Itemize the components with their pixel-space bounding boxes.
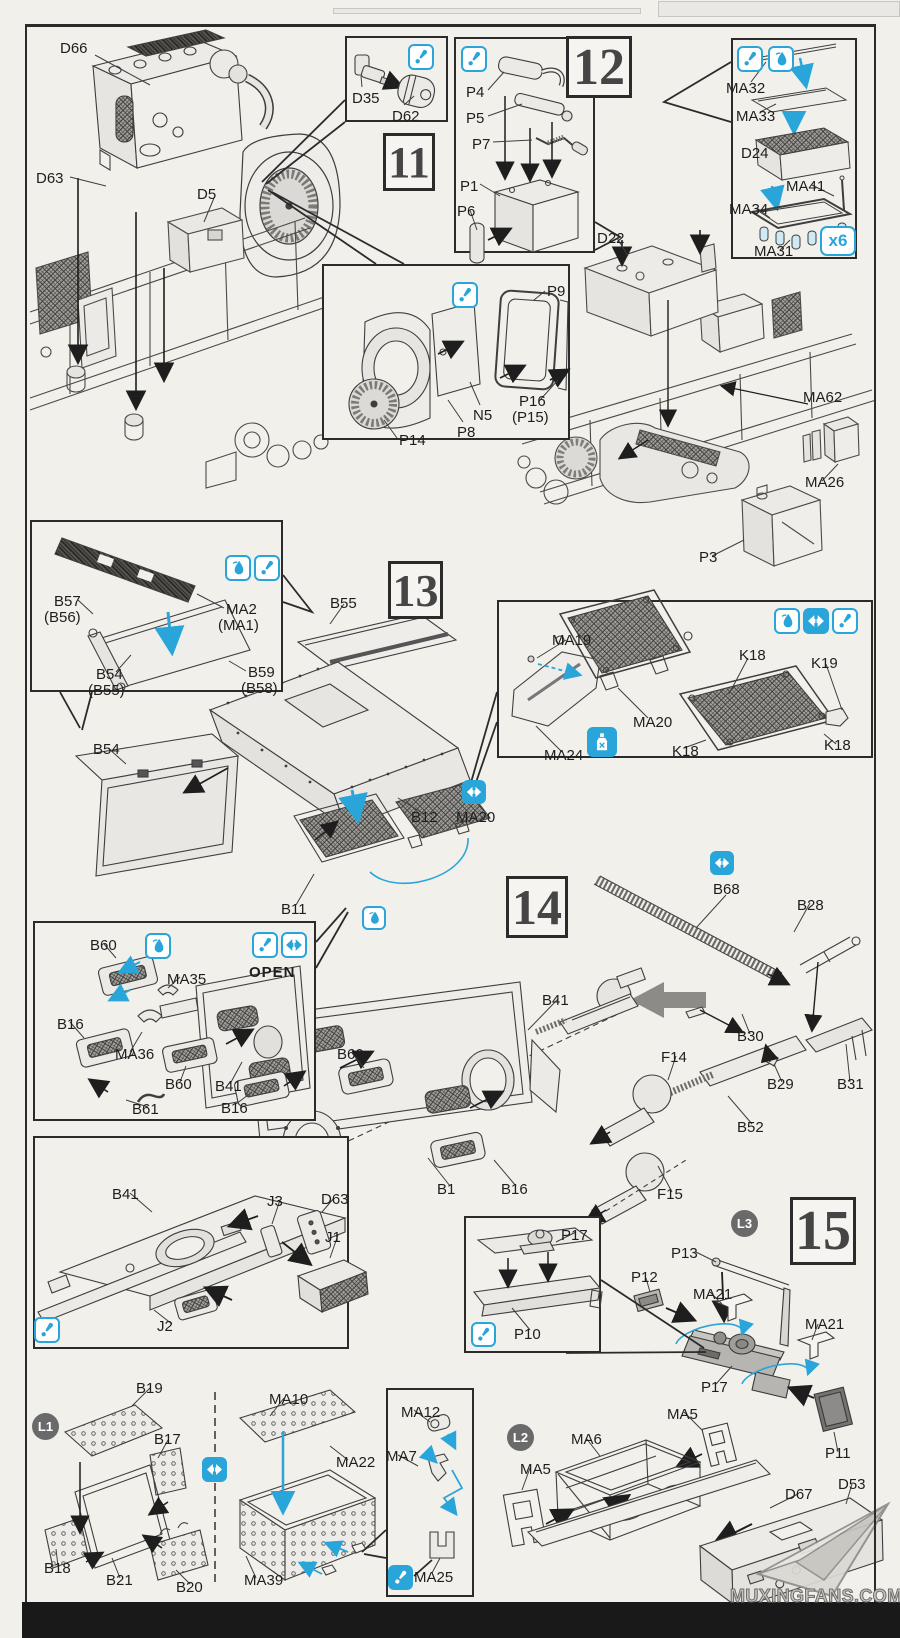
step-13-text: 13 <box>393 564 439 617</box>
attention-icon <box>34 1317 60 1343</box>
step-12-text: 12 <box>573 38 625 97</box>
part-label: MA62 <box>803 389 842 406</box>
part-label: MA26 <box>805 474 844 491</box>
part-label: B17 <box>154 1431 181 1448</box>
part-label: P6 <box>457 203 475 220</box>
cement-icon <box>587 727 617 757</box>
part-label: B60 <box>337 1046 364 1063</box>
part-label: D53 <box>838 1476 866 1493</box>
part-label: MA21 <box>693 1286 732 1303</box>
step-11-number: 11 <box>383 133 435 191</box>
part-label: B30 <box>737 1028 764 1045</box>
part-label: P5 <box>466 110 484 127</box>
step-15-number: 15 <box>790 1197 856 1265</box>
part-label: K18 <box>824 737 851 754</box>
part-label: (B55) <box>88 682 125 699</box>
part-label: MA34 <box>729 201 768 218</box>
part-label: MA33 <box>736 108 775 125</box>
part-label: MA25 <box>414 1569 453 1586</box>
quantity-x6-badge: x6 <box>820 226 856 256</box>
part-label: MA41 <box>786 178 825 195</box>
part-label: P11 <box>825 1445 851 1462</box>
part-label: P17 <box>701 1379 728 1396</box>
glue-icon <box>774 608 800 634</box>
attention-icon <box>471 1322 496 1347</box>
optional-parts-icon <box>803 608 829 634</box>
part-label: B41 <box>215 1078 242 1095</box>
part-label: D24 <box>741 145 769 162</box>
part-label: MA22 <box>336 1454 375 1471</box>
part-label: P17 <box>561 1227 588 1244</box>
part-label: F14 <box>661 1049 687 1066</box>
open-position-label: OPEN <box>249 964 296 981</box>
part-label: P13 <box>671 1245 698 1262</box>
part-label: B20 <box>176 1579 203 1596</box>
part-label: B31 <box>837 1076 864 1093</box>
part-label: MA35 <box>167 971 206 988</box>
part-label: MA31 <box>754 243 793 260</box>
part-label: P10 <box>514 1326 541 1343</box>
part-label: J1 <box>325 1229 341 1246</box>
part-label: B12 <box>411 809 438 826</box>
stowage-l1-drawing <box>45 1392 215 1584</box>
part-label: D5 <box>197 186 216 203</box>
part-label: (P15) <box>512 409 549 426</box>
part-label: B54 <box>96 666 123 683</box>
optional-parts-icon <box>710 851 734 875</box>
attention-icon <box>737 46 763 72</box>
part-label: D63 <box>321 1191 349 1208</box>
part-label: B60 <box>90 937 117 954</box>
part-label: B18 <box>44 1560 71 1577</box>
part-label: MA19 <box>552 632 591 649</box>
fan-drawing <box>240 134 340 277</box>
part-label: (MA1) <box>218 617 259 634</box>
part-label: P3 <box>699 549 717 566</box>
part-label: B11 <box>281 901 307 918</box>
part-label: MA10 <box>269 1391 308 1408</box>
part-label: P9 <box>547 283 565 300</box>
part-label: P12 <box>631 1269 658 1286</box>
part-label: P1 <box>460 178 478 195</box>
glue-icon <box>362 906 386 930</box>
part-label: J2 <box>157 1318 173 1335</box>
part-label: B68 <box>713 881 740 898</box>
chassis-left-drawing <box>30 178 332 488</box>
sprue-badge-l2: L2 <box>507 1424 534 1451</box>
part-label: P4 <box>466 84 484 101</box>
part-label: B52 <box>737 1119 764 1136</box>
part-label: B41 <box>542 992 569 1009</box>
optional-parts-icon <box>202 1457 227 1482</box>
optional-parts-icon <box>281 932 307 958</box>
part-label: MA20 <box>456 809 495 826</box>
machinegun-step14-drawing <box>536 876 872 1224</box>
watermark-text: MUXINGFANS.COM <box>730 1586 900 1607</box>
part-label: MA6 <box>571 1431 602 1448</box>
part-label: MA5 <box>520 1461 551 1478</box>
part-label: P16 <box>519 393 546 410</box>
part-label: B29 <box>767 1076 794 1093</box>
attention-icon <box>408 44 434 70</box>
basket-ma10-drawing <box>240 1390 375 1580</box>
part-label: D35 <box>352 90 380 107</box>
part-label: MA32 <box>726 80 765 97</box>
part-label: D66 <box>60 40 88 57</box>
part-label: D22 <box>597 230 625 247</box>
attention-icon <box>461 46 487 72</box>
part-label: B19 <box>136 1380 163 1397</box>
page-border-frame <box>25 24 876 1602</box>
part-label: (B58) <box>241 680 278 697</box>
part-label: B57 <box>54 593 81 610</box>
attention-icon <box>452 282 478 308</box>
attention-icon <box>252 932 278 958</box>
part-label: B21 <box>106 1572 133 1589</box>
attention-icon <box>254 555 280 581</box>
part-label: B55 <box>330 595 357 612</box>
scan-remnant <box>658 1 900 17</box>
bottom-black-bar <box>22 1602 900 1638</box>
part-label: MA7 <box>386 1448 417 1465</box>
part-label: B59 <box>248 664 275 681</box>
part-label: B1 <box>437 1181 455 1198</box>
engine-drawing <box>93 30 269 170</box>
detail-box-dashboard <box>33 1136 349 1349</box>
watermark-plane-logo <box>758 1504 888 1596</box>
glue-icon <box>768 46 794 72</box>
part-label: K18 <box>672 743 699 760</box>
step-12-number: 12 <box>566 36 632 98</box>
step-15-text: 15 <box>795 1199 851 1263</box>
instruction-sheet-page: 11 12 13 14 15 <box>0 0 900 1638</box>
part-label: MA20 <box>633 714 672 731</box>
attention-icon <box>388 1565 413 1590</box>
part-label: F15 <box>657 1186 683 1203</box>
part-label: P7 <box>472 136 490 153</box>
part-label: N5 <box>473 407 492 424</box>
sprue-badge-l1: L1 <box>32 1413 59 1440</box>
part-label: (B56) <box>44 609 81 626</box>
glue-icon <box>145 933 171 959</box>
part-label: B41 <box>112 1186 139 1203</box>
part-label: D67 <box>785 1486 813 1503</box>
part-label: K19 <box>811 655 838 672</box>
step-13-number: 13 <box>388 561 443 619</box>
glue-icon <box>225 555 251 581</box>
part-label: MA5 <box>667 1406 698 1423</box>
step-14-number: 14 <box>506 876 568 938</box>
part-label: J3 <box>267 1193 283 1210</box>
sprue-badge-l3: L3 <box>731 1210 758 1237</box>
part-label: B61 <box>132 1101 159 1118</box>
part-label: D63 <box>36 170 64 187</box>
part-label: B54 <box>93 741 120 758</box>
scan-remnant <box>333 8 641 14</box>
step-11-text: 11 <box>388 137 430 188</box>
part-label: MA2 <box>226 601 257 618</box>
part-label: P14 <box>399 432 426 449</box>
part-label: B16 <box>221 1100 248 1117</box>
part-label: B16 <box>501 1181 528 1198</box>
part-label: MA36 <box>115 1046 154 1063</box>
part-label: P8 <box>457 424 475 441</box>
winch-step15-drawing <box>634 1258 853 1466</box>
part-label: B16 <box>57 1016 84 1033</box>
attention-icon <box>832 608 858 634</box>
part-label: B60 <box>165 1076 192 1093</box>
part-label: D62 <box>392 108 420 125</box>
part-label: MA21 <box>805 1316 844 1333</box>
part-label: MA39 <box>244 1572 283 1589</box>
part-label: K18 <box>739 647 766 664</box>
part-label: MA24 <box>544 747 583 764</box>
crate-l2-drawing <box>503 1440 883 1610</box>
optional-parts-icon <box>462 780 486 804</box>
part-label: MA12 <box>401 1404 440 1421</box>
step-14-text: 14 <box>512 878 562 936</box>
part-label: B28 <box>797 897 824 914</box>
